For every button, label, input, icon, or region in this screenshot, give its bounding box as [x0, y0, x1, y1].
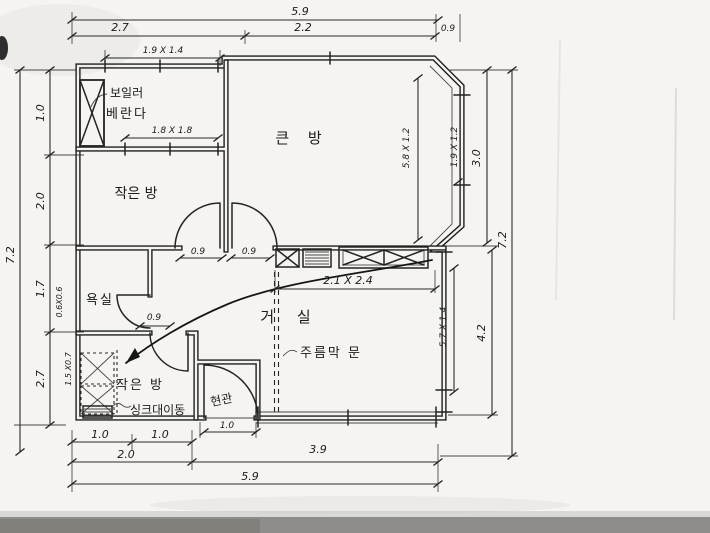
label-small-room: 작은 방	[114, 186, 157, 202]
floor-plan-canvas: 큰 방 작은 방 베란다 보일러 욕실 작은 방 현관 거 실 주름막 문 싱크…	[0, 0, 710, 533]
dim-left-seg3: 1.7	[34, 280, 47, 298]
label-boiler: 보일러	[110, 86, 143, 100]
dim-top-corner: 0.9	[441, 24, 456, 34]
dim-door-bath: 0.9	[147, 313, 162, 323]
paper-background	[0, 0, 710, 533]
label-bathroom: 욕실	[86, 293, 114, 308]
dim-bay-window: 1.9 X 1.2	[450, 126, 460, 167]
dim-left-seg4: 2.7	[34, 370, 47, 388]
dim-entrance-door: 1.0	[220, 421, 235, 431]
dim-bottom-left: 2.0	[117, 448, 135, 461]
dim-closet: 2.1 X 2.4	[323, 274, 373, 287]
dim-door-small: 0.9	[191, 247, 206, 257]
label-utility-room: 작은 방	[116, 378, 164, 393]
note-sink-move: 싱크대이동	[130, 403, 185, 417]
dim-bottom-total: 5.9	[241, 470, 259, 483]
dim-bottom-seg1a: 1.0	[91, 428, 109, 441]
dim-top-total: 5.9	[291, 5, 309, 18]
label-living-room: 거 실	[260, 308, 319, 326]
dim-bottom-seg1b: 1.0	[151, 428, 169, 441]
dim-veranda-window: 1.9 X 1.4	[143, 46, 184, 56]
label-veranda: 베란다	[106, 107, 148, 122]
note-accordion-door: 주름막 문	[300, 346, 362, 361]
label-big-room: 큰 방	[275, 129, 328, 147]
dim-living-window: 5.7 X 1.4	[439, 306, 449, 347]
dim-left-note2: 1.5 X0.7	[64, 351, 73, 385]
dim-top-seg2: 2.2	[294, 21, 312, 34]
dim-left-seg2: 2.0	[34, 192, 47, 210]
scanned-floor-plan: 큰 방 작은 방 베란다 보일러 욕실 작은 방 현관 거 실 주름막 문 싱크…	[0, 0, 710, 533]
dim-bay-inner: 5.8 X 1.2	[402, 127, 412, 168]
dim-bottom-right: 3.9	[309, 443, 327, 456]
dim-left-note1: 0.6X0.6	[55, 287, 64, 318]
dim-right-bottom: 4.2	[475, 324, 488, 342]
dim-small-room-window: 1.8 X 1.8	[152, 126, 193, 136]
dim-right-total: 7.2	[496, 231, 509, 249]
dim-left-total: 7.2	[4, 246, 17, 264]
dim-left-seg1: 1.0	[34, 104, 47, 122]
dim-door-big: 0.9	[242, 247, 257, 257]
dim-right-top: 3.0	[470, 149, 483, 167]
